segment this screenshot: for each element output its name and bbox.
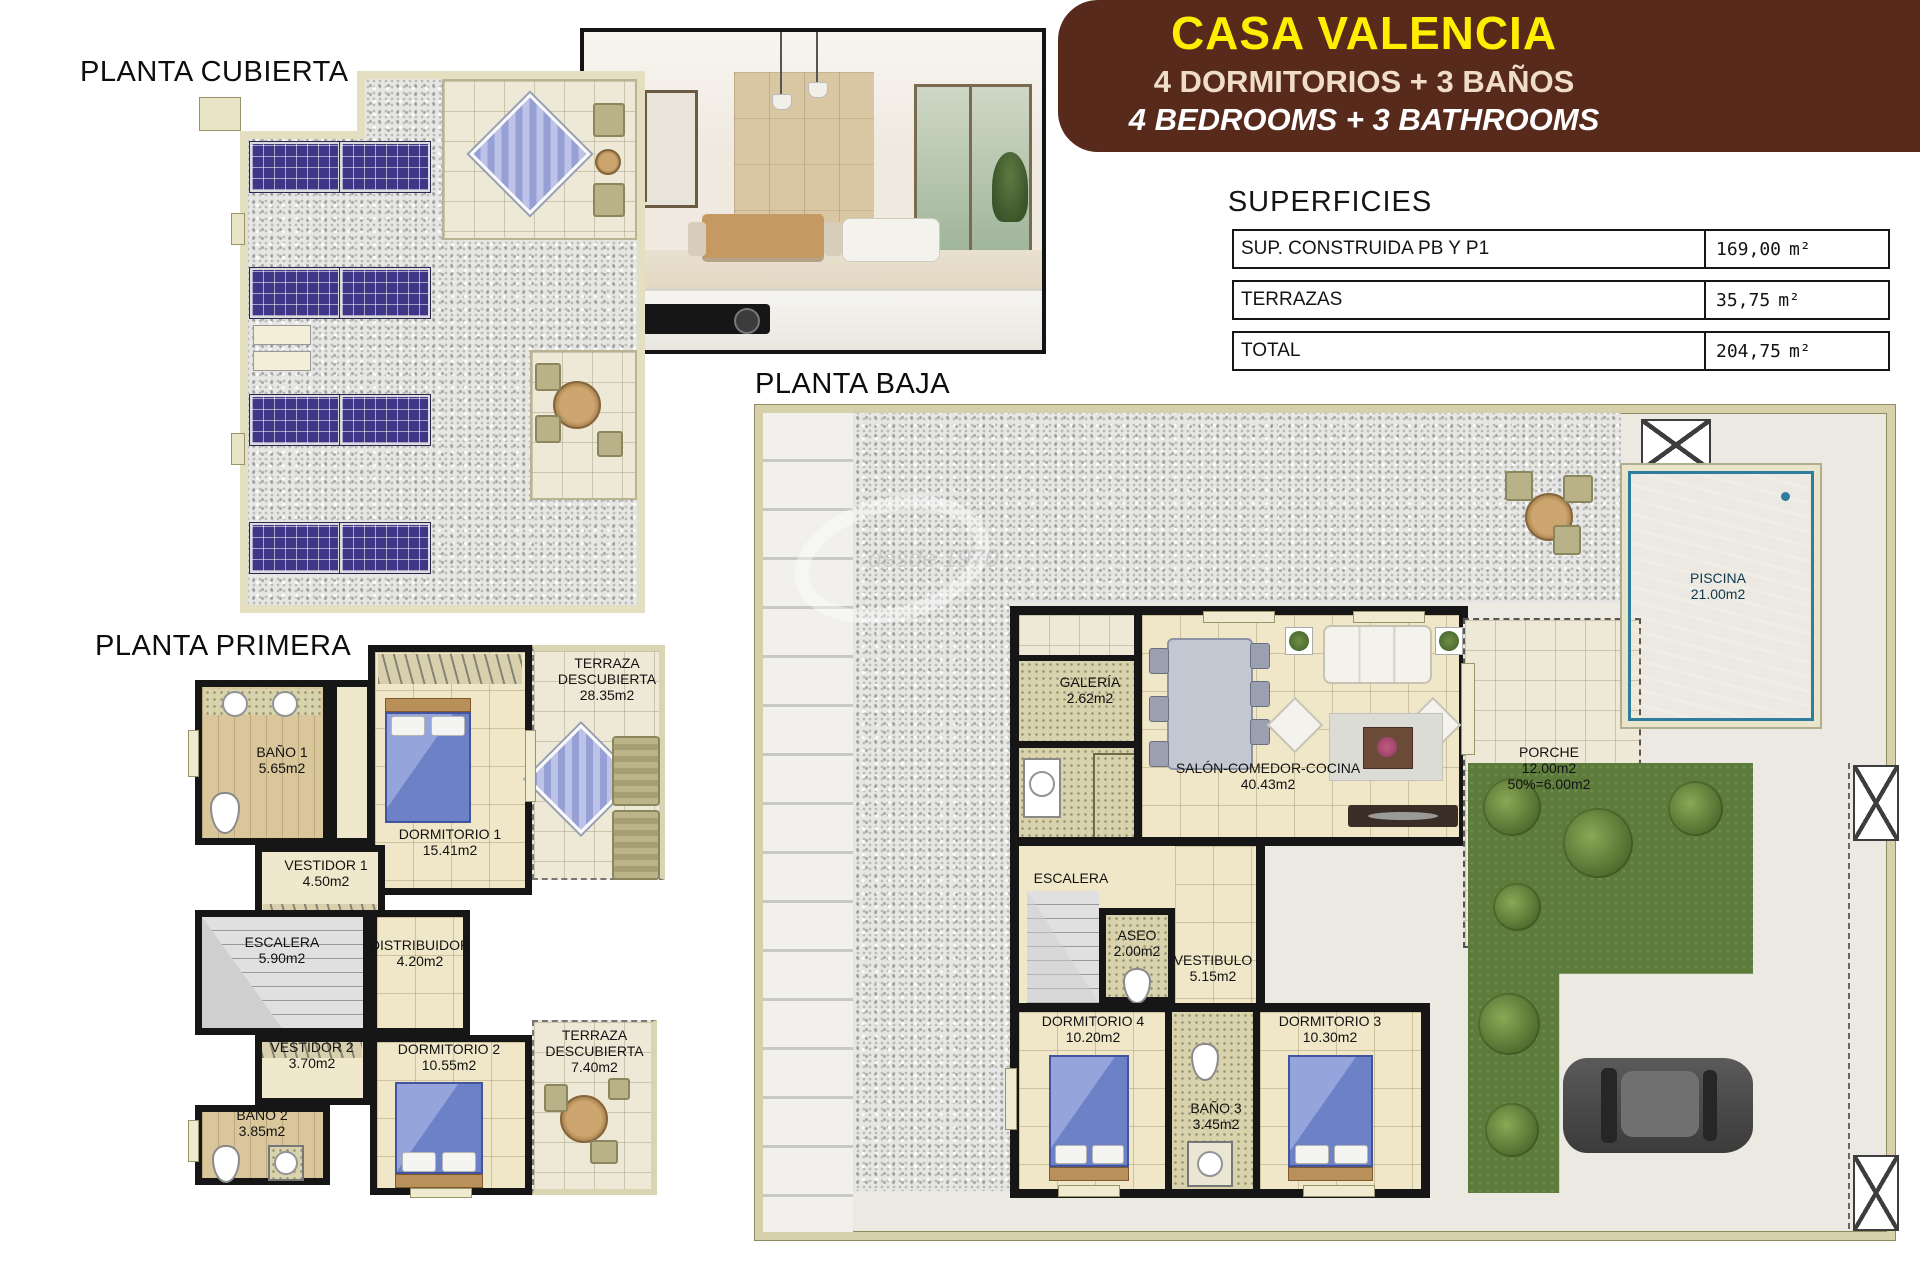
bed-icon (395, 1082, 483, 1188)
chair-icon (544, 1084, 568, 1112)
chair-icon (593, 183, 625, 217)
window-sill (1058, 1185, 1120, 1197)
gate-icon (1853, 765, 1899, 841)
subtitle-english: 4 BEDROOMS + 3 BATHROOMS (1058, 102, 1670, 138)
pool-drain (1781, 492, 1790, 501)
page: CASA VALENCIA 4 DORMITORIOS + 3 BAÑOS 4 … (0, 0, 1920, 1280)
sun-lounger-icon (612, 736, 660, 806)
value-unit: m² (1778, 290, 1800, 311)
chair-icon (1250, 643, 1270, 669)
solar-panel (340, 523, 430, 573)
photo-door-frame (969, 84, 972, 252)
side-table-icon (595, 149, 621, 175)
solar-panel (250, 395, 340, 445)
photo-pendant-shade-1 (772, 94, 792, 110)
photo-cooktop-pot (734, 308, 760, 334)
superficies-title: SUPERFICIES (1180, 186, 1480, 219)
roof-chimney (199, 97, 241, 131)
solar-panel (250, 142, 340, 192)
stool-icon (597, 431, 623, 457)
superficies-label: TOTAL (1234, 333, 1706, 369)
superficies-row-terrazas: TERRAZAS 35,75m² (1232, 280, 1890, 320)
property-title: CASA VALENCIA (1058, 6, 1670, 60)
sofa-icon (1323, 625, 1432, 684)
bush-icon (1493, 883, 1541, 931)
room-label-bano2: BAÑO 23.85m2 (236, 1108, 287, 1140)
sink-icon (1029, 771, 1055, 797)
value-number: 169,00 (1716, 239, 1781, 260)
bush-icon (1478, 993, 1540, 1055)
bed-icon (1049, 1055, 1129, 1181)
wall (1019, 741, 1134, 748)
room-label-porche: PORCHE12.00m250%=6.00m2 (1508, 745, 1591, 793)
superficies-row-total: TOTAL 204,75m² (1232, 331, 1890, 371)
room-label-bano1: BAÑO 15.65m2 (256, 745, 307, 777)
room-label-escalera: ESCALERA5.90m2 (245, 935, 320, 967)
superficies-label: TERRAZAS (1234, 282, 1706, 318)
photo-pendant-2 (816, 32, 818, 84)
wardrobe-icon (378, 654, 522, 684)
window-sill (1005, 1068, 1017, 1130)
window-sill (525, 730, 536, 802)
chair-icon (535, 415, 561, 443)
value-unit: m² (1789, 239, 1811, 260)
window-sill (1353, 611, 1425, 623)
chair-icon (1149, 648, 1169, 674)
chair-icon (1250, 681, 1270, 707)
bed-icon (1288, 1055, 1373, 1181)
galeria-terrace (1019, 615, 1134, 661)
room-label-galeria: GALERÍA2.62m2 (1060, 675, 1121, 707)
plan-cubierta (195, 63, 645, 613)
value-number: 204,75 (1716, 341, 1781, 362)
planter-icon (1285, 627, 1313, 655)
plot-boundary-dashed (1848, 763, 1850, 1229)
window-sill (188, 1120, 199, 1162)
tv-unit-icon (1348, 805, 1458, 827)
bush-icon (1668, 781, 1723, 836)
kitchen-island (1093, 753, 1137, 841)
roof-vent-tab-2 (231, 433, 245, 465)
room-label-aseo: ASEO2.00m2 (1114, 928, 1161, 960)
room-label-terraza1: TERRAZA DESCUBIERTA28.35m2 (553, 656, 661, 704)
solar-panel (250, 268, 340, 318)
window-sill (410, 1188, 472, 1198)
room-label-vestidor1: VESTIDOR 14.50m2 (284, 858, 367, 890)
planter-icon (1435, 627, 1463, 655)
room-label-vestibulo: VESTIBULO5.15m2 (1174, 953, 1253, 985)
dining-table-icon (1167, 638, 1253, 770)
value-unit: m² (1789, 341, 1811, 362)
room-label-bano3: BAÑO 33.45m2 (1190, 1101, 1241, 1133)
superficies-label: SUP. CONSTRUIDA PB Y P1 (1234, 231, 1706, 267)
sink-icon (274, 1151, 298, 1175)
value-number: 35,75 (1716, 290, 1770, 311)
wall (1165, 1012, 1172, 1189)
bush-icon (1563, 808, 1633, 878)
subtitle-spanish: 4 DORMITORIOS + 3 BAÑOS (1058, 64, 1670, 100)
solar-panel (340, 395, 430, 445)
solar-panel (340, 142, 430, 192)
superficies-value: 169,00m² (1706, 231, 1888, 267)
chair-icon (1149, 696, 1169, 722)
chair-icon (1149, 741, 1169, 767)
window-sill (188, 730, 199, 777)
flowers-icon (1377, 737, 1397, 757)
chair-icon (593, 103, 625, 137)
interior-photo (580, 28, 1046, 354)
photo-plant (992, 152, 1028, 222)
wall (1253, 1012, 1260, 1189)
room-label-salon: SALÓN-COMEDOR-COCINA40.43m2 (1176, 761, 1360, 793)
car-icon (1563, 1058, 1753, 1153)
room-label-piscina: PISCINA21.00m2 (1690, 571, 1746, 603)
wall (1134, 615, 1142, 837)
plan-baja: desde 1970 (755, 405, 1895, 1240)
chair-icon (1553, 525, 1581, 555)
roof-vent-box (253, 351, 311, 371)
pool-tech-box (1641, 419, 1711, 471)
room-label-escalera: ESCALERA (1034, 871, 1109, 887)
stool-icon (608, 1078, 630, 1100)
room-label-dormitorio3: DORMITORIO 310.30m2 (1279, 1014, 1381, 1046)
baja-title: PLANTA BAJA (755, 368, 950, 401)
photo-pendant-1 (780, 32, 782, 96)
photo-dining-table (702, 214, 824, 258)
window-sill (1461, 663, 1475, 755)
roof-vent-tab-1 (231, 213, 245, 245)
sink-icon (1197, 1151, 1223, 1177)
chair-icon (590, 1140, 618, 1164)
chair-icon (1563, 475, 1593, 503)
watermark-text: desde 1970 (868, 545, 999, 574)
roof-vent-box (253, 325, 311, 345)
solar-panel (340, 268, 430, 318)
superficies-value: 204,75m² (1706, 333, 1888, 369)
title-banner: CASA VALENCIA 4 DORMITORIOS + 3 BAÑOS 4 … (1058, 0, 1920, 152)
bed-icon (385, 698, 471, 823)
bush-icon (1485, 1103, 1539, 1157)
photo-sofa (842, 218, 940, 262)
sink-icon (222, 691, 248, 717)
solar-panel (250, 523, 340, 573)
room-label-distribuidor: DISTRIBUIDOR4.20m2 (370, 938, 470, 970)
superficies-row-construida: SUP. CONSTRUIDA PB Y P1 169,00m² (1232, 229, 1890, 269)
window-sill (1303, 1185, 1375, 1197)
sink-icon (272, 691, 298, 717)
plan-primera: BAÑO 15.65m2 VESTIDOR 14.50m2 DORMITORIO… (150, 640, 665, 1240)
gate-icon (1853, 1155, 1899, 1231)
room-label-dormitorio2: DORMITORIO 210.55m2 (398, 1042, 500, 1074)
sun-lounger-icon (612, 810, 660, 880)
room-label-vestidor2: VESTIDOR 23.70m2 (270, 1040, 353, 1072)
room-label-terraza2: TERRAZA DESCUBIERTA7.40m2 (542, 1028, 647, 1076)
superficies-value: 35,75m² (1706, 282, 1888, 318)
photo-pendant-shade-2 (808, 82, 828, 98)
photo-chair-1 (688, 222, 706, 256)
window-sill (1203, 611, 1275, 623)
photo-chair-2 (824, 222, 842, 256)
room-label-dormitorio1: DORMITORIO 115.41m2 (399, 827, 501, 859)
chair-icon (1505, 471, 1533, 501)
room-label-dormitorio4: DORMITORIO 410.20m2 (1042, 1014, 1144, 1046)
chair-icon (535, 363, 561, 391)
room-distribuidor (370, 910, 470, 1035)
